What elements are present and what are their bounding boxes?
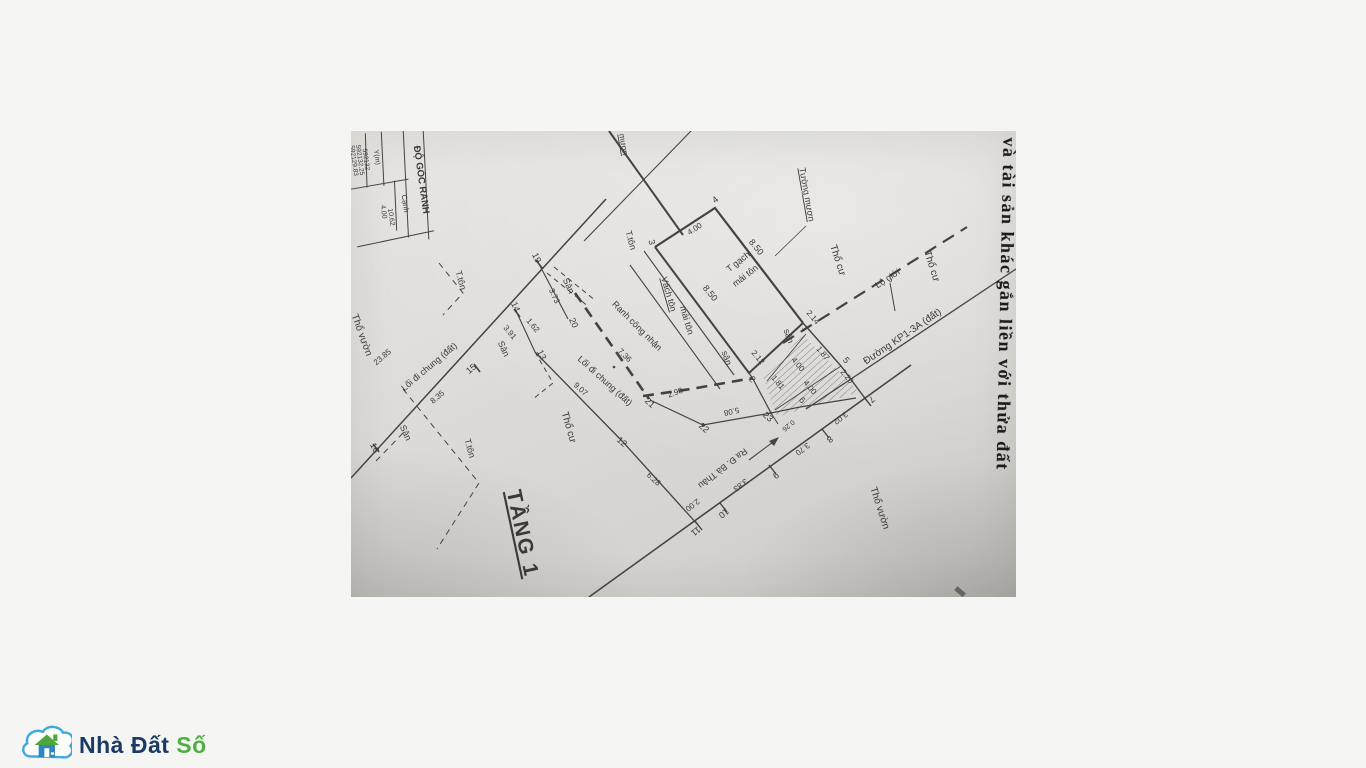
diagram-label: Tường mượn <box>797 167 816 222</box>
scan-smudge <box>954 586 966 597</box>
diagram-label: Đường KP1-3A (đất) <box>861 306 944 367</box>
hatched-strip <box>753 323 867 417</box>
survey-drawing: ĐỘ GÓC RANHY(m)Cạnh592129.83592132.25592… <box>351 131 1016 597</box>
table-cell: 4.00 <box>379 205 388 220</box>
diagram-label: 11 <box>689 525 703 539</box>
table-title: ĐỘ GÓC RANH <box>411 145 432 215</box>
diagram-label: 0.26 <box>780 418 795 432</box>
diagram-label: sân <box>720 349 734 366</box>
diagram-label: Thổ vườn <box>351 312 375 357</box>
diagram-label: mái tôn <box>678 305 696 336</box>
watermark-logo[interactable]: Nhà Đất Số <box>20 722 207 768</box>
coordinate-table: ĐỘ GÓC RANHY(m)Cạnh592129.83592132.25592… <box>351 131 435 247</box>
diagram-label: 13 <box>535 348 548 361</box>
page: { "page": {"background": "#f5f5f4"}, "wa… <box>0 0 1366 768</box>
diagram-label: 10 <box>717 506 731 520</box>
diagram-label: 2 <box>747 374 758 384</box>
direction-arrow <box>749 437 779 460</box>
diagram-label: T.tôn <box>453 269 468 291</box>
diagram-label: 16 <box>368 441 381 454</box>
diagram-label: 23 <box>761 410 775 424</box>
diagram-label: T.tôn <box>623 229 638 251</box>
diagram-label: Thổ cư <box>921 249 942 283</box>
table-header: Cạnh <box>400 194 411 213</box>
diagram-label: 7.36 <box>616 347 634 365</box>
diagram-label: Thổ vườn <box>867 485 892 530</box>
diagram-label: T.tôn <box>462 437 477 459</box>
diagram-label: 23.85 <box>372 347 394 367</box>
middle-path-line <box>535 352 698 525</box>
diagram-label: 2.12 <box>749 349 766 367</box>
diagram-label: 21 <box>643 396 657 410</box>
diagram-label: 6.28 <box>645 471 663 488</box>
diagram-label: 8.50 <box>701 283 720 303</box>
diagram-label: 4.00 <box>686 221 704 237</box>
diagram-label: Sân <box>398 423 414 442</box>
table-cell: 10.62 <box>386 208 395 226</box>
logo-text: Nhà Đất Số <box>79 732 207 759</box>
diagram-label: 9.07 <box>572 381 590 398</box>
road-kp13a-edges <box>589 269 1016 597</box>
diagram-label: 2.98 <box>666 386 684 400</box>
table-header: Y(m) <box>372 149 381 165</box>
borrowed-wall-lines <box>584 131 806 256</box>
scanned-survey-photo[interactable]: ĐỘ GÓC RANHY(m)Cạnh592129.83592132.25592… <box>351 131 1016 597</box>
diagram-label: 3.02 <box>831 410 849 427</box>
diagram-label: Thổ cư <box>559 410 579 444</box>
diagram-label: 19 <box>530 251 543 264</box>
diagram-label: Lộ giới <box>873 267 901 290</box>
diagram-label: Lối đi chung (đất) <box>399 341 459 393</box>
diagram-label: Thổ cư <box>827 243 848 277</box>
diagram-label: 1.62 <box>524 317 541 335</box>
cloud-house-icon <box>20 722 72 768</box>
diagram-label: 5.08 <box>722 405 740 417</box>
diagram-label: 3 <box>646 238 657 246</box>
diagram-label: 4 <box>710 194 720 205</box>
diagram-label: 3.83 <box>731 477 749 494</box>
logo-text-part2: Số <box>176 732 206 758</box>
diagram-label: 20 <box>567 316 580 329</box>
diagram-label: 9 <box>771 470 781 481</box>
logo-text-part1: Nhà Đất <box>79 732 169 758</box>
diagram-label: 5 <box>841 355 852 365</box>
diagram-label: 15 <box>464 362 478 376</box>
tton-dashed-shapes <box>376 263 479 549</box>
diagram-label: TẦNG 1 <box>502 488 543 580</box>
diagram-label: Ranh công nhận <box>610 299 664 353</box>
diagram-label: Sân <box>496 339 512 358</box>
diagram-label: mượn <box>617 133 630 156</box>
